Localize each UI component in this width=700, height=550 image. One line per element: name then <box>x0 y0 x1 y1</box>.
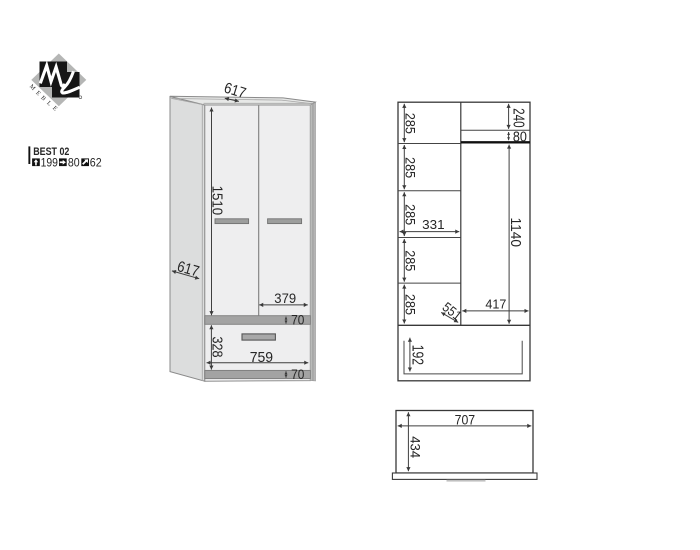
svg-text:70: 70 <box>291 366 304 382</box>
svg-text:285: 285 <box>403 204 419 225</box>
svg-text:759: 759 <box>250 350 273 366</box>
svg-text:285: 285 <box>403 294 419 315</box>
svg-text:417: 417 <box>485 297 506 311</box>
svg-text:1140: 1140 <box>507 218 524 248</box>
svg-text:285: 285 <box>403 113 419 134</box>
svg-text:434: 434 <box>407 436 422 458</box>
svg-text:240: 240 <box>510 108 527 128</box>
svg-text:285: 285 <box>403 250 419 271</box>
svg-text:199: 199 <box>41 156 59 170</box>
svg-text:80: 80 <box>513 130 527 146</box>
svg-text:1510: 1510 <box>209 186 226 216</box>
svg-text:80: 80 <box>68 156 80 170</box>
svg-text:379: 379 <box>274 291 296 307</box>
svg-text:707: 707 <box>455 412 476 428</box>
svg-text:192: 192 <box>409 345 426 365</box>
svg-text:328: 328 <box>209 337 226 358</box>
svg-text:331: 331 <box>422 217 444 232</box>
svg-text:62: 62 <box>90 156 102 170</box>
svg-text:70: 70 <box>291 312 304 328</box>
svg-text:285: 285 <box>403 157 419 178</box>
